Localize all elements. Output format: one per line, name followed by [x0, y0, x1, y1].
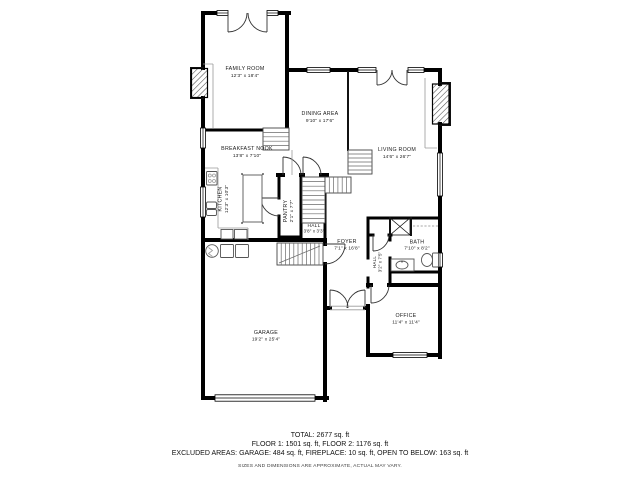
toilet-bowl	[422, 254, 433, 267]
footer-total: TOTAL: 2677 sq. ft	[291, 432, 350, 439]
footer-floors: FLOOR 1: 1501 sq. ft, FLOOR 2: 1176 sq. …	[252, 441, 388, 448]
window	[201, 187, 206, 217]
toilet-tank	[433, 253, 439, 267]
room-dims-family: 12'3" x 18'4"	[231, 73, 259, 79]
window	[201, 128, 206, 148]
room-label-nook: BREAKFAST NOOK	[221, 146, 273, 152]
kitchen-fixtures	[205, 168, 264, 240]
room-dims-living: 14'6" x 26'7"	[383, 154, 411, 160]
floor-plan-page: FAMILY ROOM 12'3" x 18'4" DINING AREA 9'…	[0, 0, 640, 480]
room-dims-nook: 13'8" x 7'10"	[233, 153, 261, 159]
main-stairs-landing	[325, 177, 351, 193]
window	[307, 68, 330, 73]
laundry-appliance	[221, 245, 234, 258]
room-dims-dining: 9'10" x 17'6"	[306, 118, 334, 124]
window	[408, 68, 424, 73]
room-label-dining: DINING AREA	[302, 111, 339, 117]
room-dims-kitchen: 12'3" x 10'3"	[224, 185, 230, 213]
room-label-kitchen: KITCHEN	[218, 187, 224, 212]
room-label-office: OFFICE	[396, 313, 417, 319]
room-label-bath: BATH	[410, 240, 425, 246]
closets	[390, 218, 439, 235]
living-room-double-door	[377, 70, 407, 85]
living-room-fireplace	[433, 84, 450, 124]
kitchen-island	[243, 175, 262, 222]
room-label-family: FAMILY ROOM	[225, 66, 264, 72]
window	[267, 11, 278, 16]
room-label-hall2: HALL	[372, 256, 377, 269]
room-label-foyer: FOYER	[337, 239, 357, 245]
window	[393, 353, 427, 358]
footer: TOTAL: 2677 sq. ft FLOOR 1: 1501 sq. ft,…	[172, 432, 469, 469]
floor-plan-canvas: FAMILY ROOM 12'3" x 18'4" DINING AREA 9'…	[0, 0, 640, 480]
garage-door	[215, 395, 315, 401]
family-room-double-door	[228, 13, 267, 32]
stair-hall-door	[303, 157, 321, 175]
footer-excluded: EXCLUDED AREAS: GARAGE: 484 sq. ft, FIRE…	[172, 450, 469, 457]
laundry-appliance	[236, 245, 249, 258]
room-dims-office: 11'4" x 11'4"	[392, 320, 420, 326]
kitchen-appliance	[221, 230, 233, 240]
office-door	[371, 285, 389, 303]
foyer-stairs	[277, 243, 323, 265]
room-label-living: LIVING ROOM	[378, 147, 416, 153]
room-dims-garage: 19'2" x 25'4"	[252, 337, 280, 343]
family-room-fireplace	[192, 69, 208, 98]
room-dims-pantry: 2'1" x 7'7"	[289, 200, 295, 223]
front-entry-double-door	[330, 290, 365, 308]
room-label-garage: GARAGE	[254, 330, 278, 336]
garage-fixtures	[206, 245, 249, 258]
room-label-pantry: PANTRY	[283, 200, 289, 223]
room-dims-bath: 7'10" x 8'2"	[404, 246, 430, 252]
kitchen-sink	[207, 210, 217, 216]
footer-disclaimer: SIZES AND DIMENSIONS ARE APPROXIMATE, AC…	[238, 463, 402, 469]
kitchen-sink	[207, 202, 217, 209]
bath-hall-door	[373, 235, 389, 251]
main-stairs-lower	[302, 177, 325, 223]
main-stairs-upper	[348, 150, 372, 174]
bath-fixtures	[391, 253, 439, 271]
window	[358, 68, 376, 73]
window	[438, 153, 443, 196]
pantry-door	[261, 198, 279, 216]
room-dims-hall2: 3'2" x 7'5"	[378, 251, 383, 272]
room-dims-foyer: 7'1" x 16'8"	[334, 246, 360, 252]
kitchen-appliance	[235, 230, 248, 240]
room-dims-hall: 3'8" x 3'3"	[304, 229, 325, 234]
window	[217, 11, 228, 16]
cooktop	[207, 172, 218, 186]
